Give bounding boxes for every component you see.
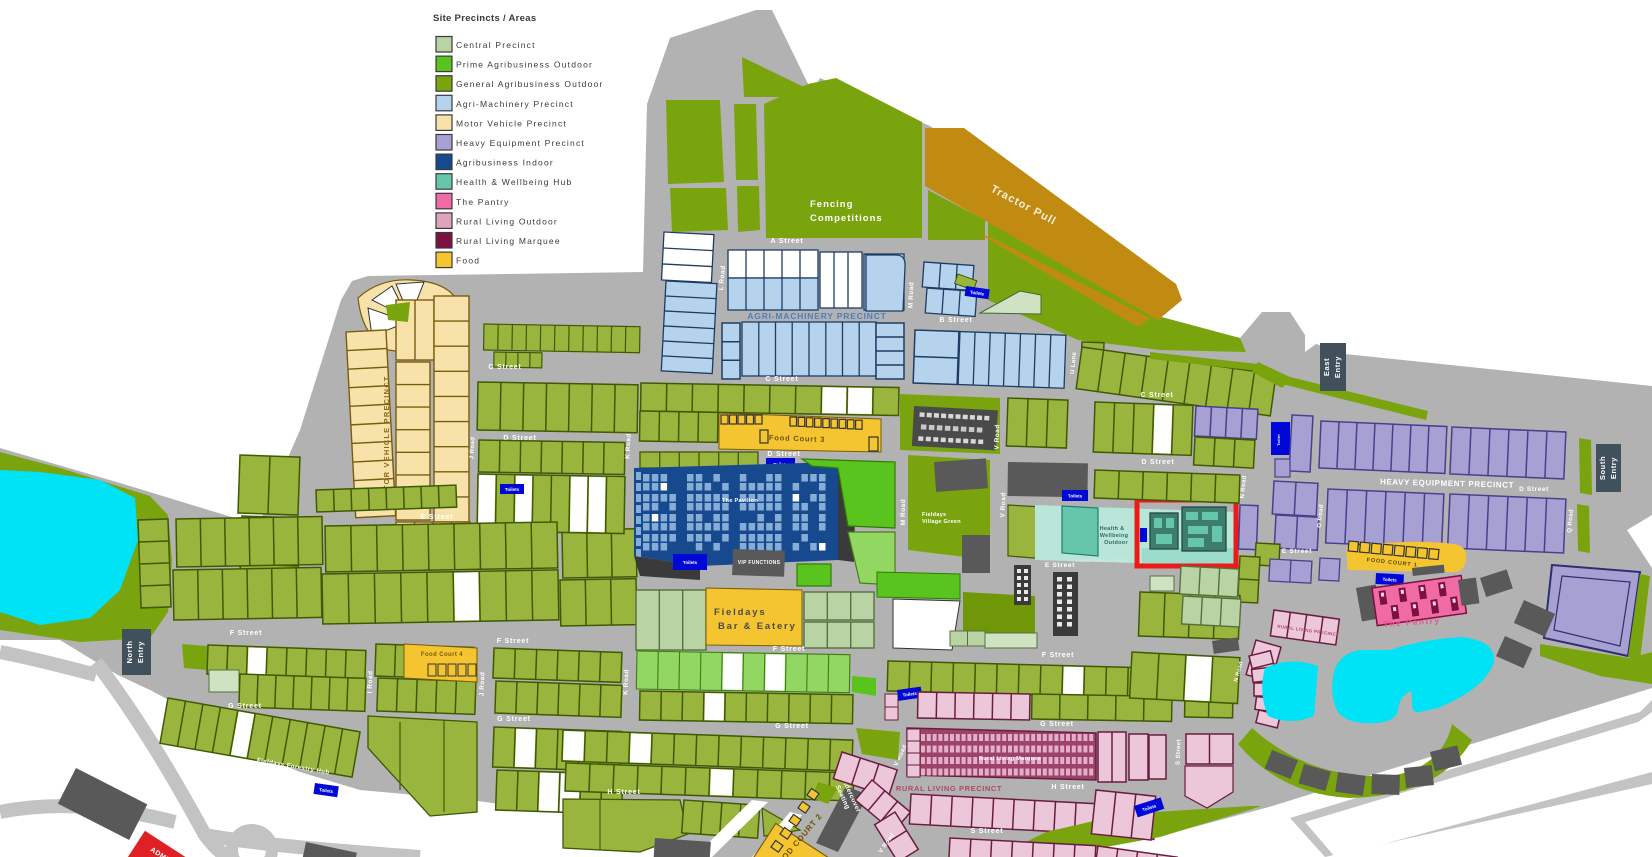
svg-text:RURAL LIVING PRECINCT: RURAL LIVING PRECINCT xyxy=(896,784,1002,793)
svg-text:South: South xyxy=(1598,456,1607,480)
svg-text:Toilets: Toilets xyxy=(1382,577,1397,583)
svg-text:M Road: M Road xyxy=(908,282,916,309)
svg-text:Entry: Entry xyxy=(136,641,145,663)
svg-text:D Street: D Street xyxy=(1141,459,1174,466)
svg-text:G Street: G Street xyxy=(497,716,531,723)
svg-text:Fieldays Waikato Pavilion: Fieldays Waikato Pavilion xyxy=(1072,558,1128,563)
svg-text:Central Precinct: Central Precinct xyxy=(456,40,536,50)
svg-text:Entry: Entry xyxy=(1333,356,1342,378)
svg-text:North: North xyxy=(125,641,134,664)
svg-text:K Road: K Road xyxy=(623,669,631,695)
svg-text:M Road: M Road xyxy=(900,499,907,525)
svg-text:Food Court 4: Food Court 4 xyxy=(421,652,463,658)
svg-text:Outdoor: Outdoor xyxy=(1104,540,1128,546)
svg-text:Toilet: Toilet xyxy=(1276,434,1281,446)
svg-text:F Street: F Street xyxy=(1042,652,1074,659)
svg-text:B Street: B Street xyxy=(939,317,972,324)
svg-text:Prime Agribusiness Outdoor: Prime Agribusiness Outdoor xyxy=(456,60,593,70)
svg-text:J Road: J Road xyxy=(479,671,487,696)
svg-text:The Pantry: The Pantry xyxy=(456,197,510,207)
svg-text:Bar & Eatery: Bar & Eatery xyxy=(718,621,797,632)
svg-text:C Street: C Street xyxy=(1140,392,1173,399)
svg-text:G Street: G Street xyxy=(775,723,809,730)
svg-text:Entry: Entry xyxy=(1609,457,1618,479)
svg-text:Toilets: Toilets xyxy=(505,487,520,492)
svg-text:Health &: Health & xyxy=(1100,526,1125,532)
svg-text:S Street: S Street xyxy=(1176,739,1183,765)
svg-text:J Road: J Road xyxy=(469,437,476,460)
svg-text:C Street: C Street xyxy=(488,364,521,371)
svg-text:Motor Vehicle Precinct: Motor Vehicle Precinct xyxy=(456,118,567,128)
svg-text:D Street: D Street xyxy=(767,451,800,458)
svg-text:G Street: G Street xyxy=(1040,721,1074,728)
svg-text:Fieldays: Fieldays xyxy=(922,512,946,518)
svg-text:I Road: I Road xyxy=(367,670,375,693)
svg-text:C Street: C Street xyxy=(765,376,798,383)
svg-text:Rural Living Marquee: Rural Living Marquee xyxy=(979,756,1041,762)
svg-text:Rural Living Outdoor: Rural Living Outdoor xyxy=(456,216,558,226)
svg-text:Toilets: Toilets xyxy=(683,560,698,565)
svg-text:E Street: E Street xyxy=(1282,548,1312,555)
svg-text:Health & Wellbeing Hub: Health & Wellbeing Hub xyxy=(456,177,573,187)
svg-text:Competitions: Competitions xyxy=(810,213,883,224)
svg-text:Wellbeing: Wellbeing xyxy=(1100,533,1129,539)
svg-text:Agri-Machinery Precinct: Agri-Machinery Precinct xyxy=(456,99,574,109)
svg-text:Site Precincts / Areas: Site Precincts / Areas xyxy=(433,13,536,24)
svg-text:Agribusiness Indoor: Agribusiness Indoor xyxy=(456,158,554,168)
svg-text:Rural Living Marquee: Rural Living Marquee xyxy=(456,236,561,246)
svg-text:F Street: F Street xyxy=(497,638,529,645)
svg-text:F Street: F Street xyxy=(773,646,805,653)
svg-text:Toilets: Toilets xyxy=(1068,494,1083,499)
svg-text:Food: Food xyxy=(456,256,480,266)
svg-text:A Street: A Street xyxy=(771,238,804,245)
svg-text:Village Green: Village Green xyxy=(922,519,961,525)
svg-text:Heavy Equipment Precinct: Heavy Equipment Precinct xyxy=(456,138,585,148)
svg-text:H Street: H Street xyxy=(1051,784,1084,791)
svg-text:D Street: D Street xyxy=(1519,486,1549,493)
svg-text:H Street: H Street xyxy=(607,789,640,796)
svg-text:AGRI-MACHINERY PRECINCT: AGRI-MACHINERY PRECINCT xyxy=(747,311,886,321)
svg-text:E Street: E Street xyxy=(421,514,454,521)
svg-text:East: East xyxy=(1322,358,1331,376)
svg-text:V Road: V Road xyxy=(999,492,1007,518)
svg-text:Fencing: Fencing xyxy=(810,199,853,210)
svg-text:F Street: F Street xyxy=(230,630,262,637)
svg-text:V Road: V Road xyxy=(994,424,1002,450)
svg-text:MOTOR VEHICLE PRECINCT: MOTOR VEHICLE PRECINCT xyxy=(382,375,391,504)
svg-text:E Street: E Street xyxy=(1045,562,1075,569)
svg-text:S Street: S Street xyxy=(971,828,1004,835)
svg-text:VIP FUNCTIONS: VIP FUNCTIONS xyxy=(738,560,781,566)
svg-text:The Pavilion: The Pavilion xyxy=(722,498,758,504)
svg-text:Fieldays: Fieldays xyxy=(714,607,766,618)
svg-text:K Road: K Road xyxy=(624,433,632,459)
svg-text:General Agribusiness Outdoor: General Agribusiness Outdoor xyxy=(456,79,603,89)
